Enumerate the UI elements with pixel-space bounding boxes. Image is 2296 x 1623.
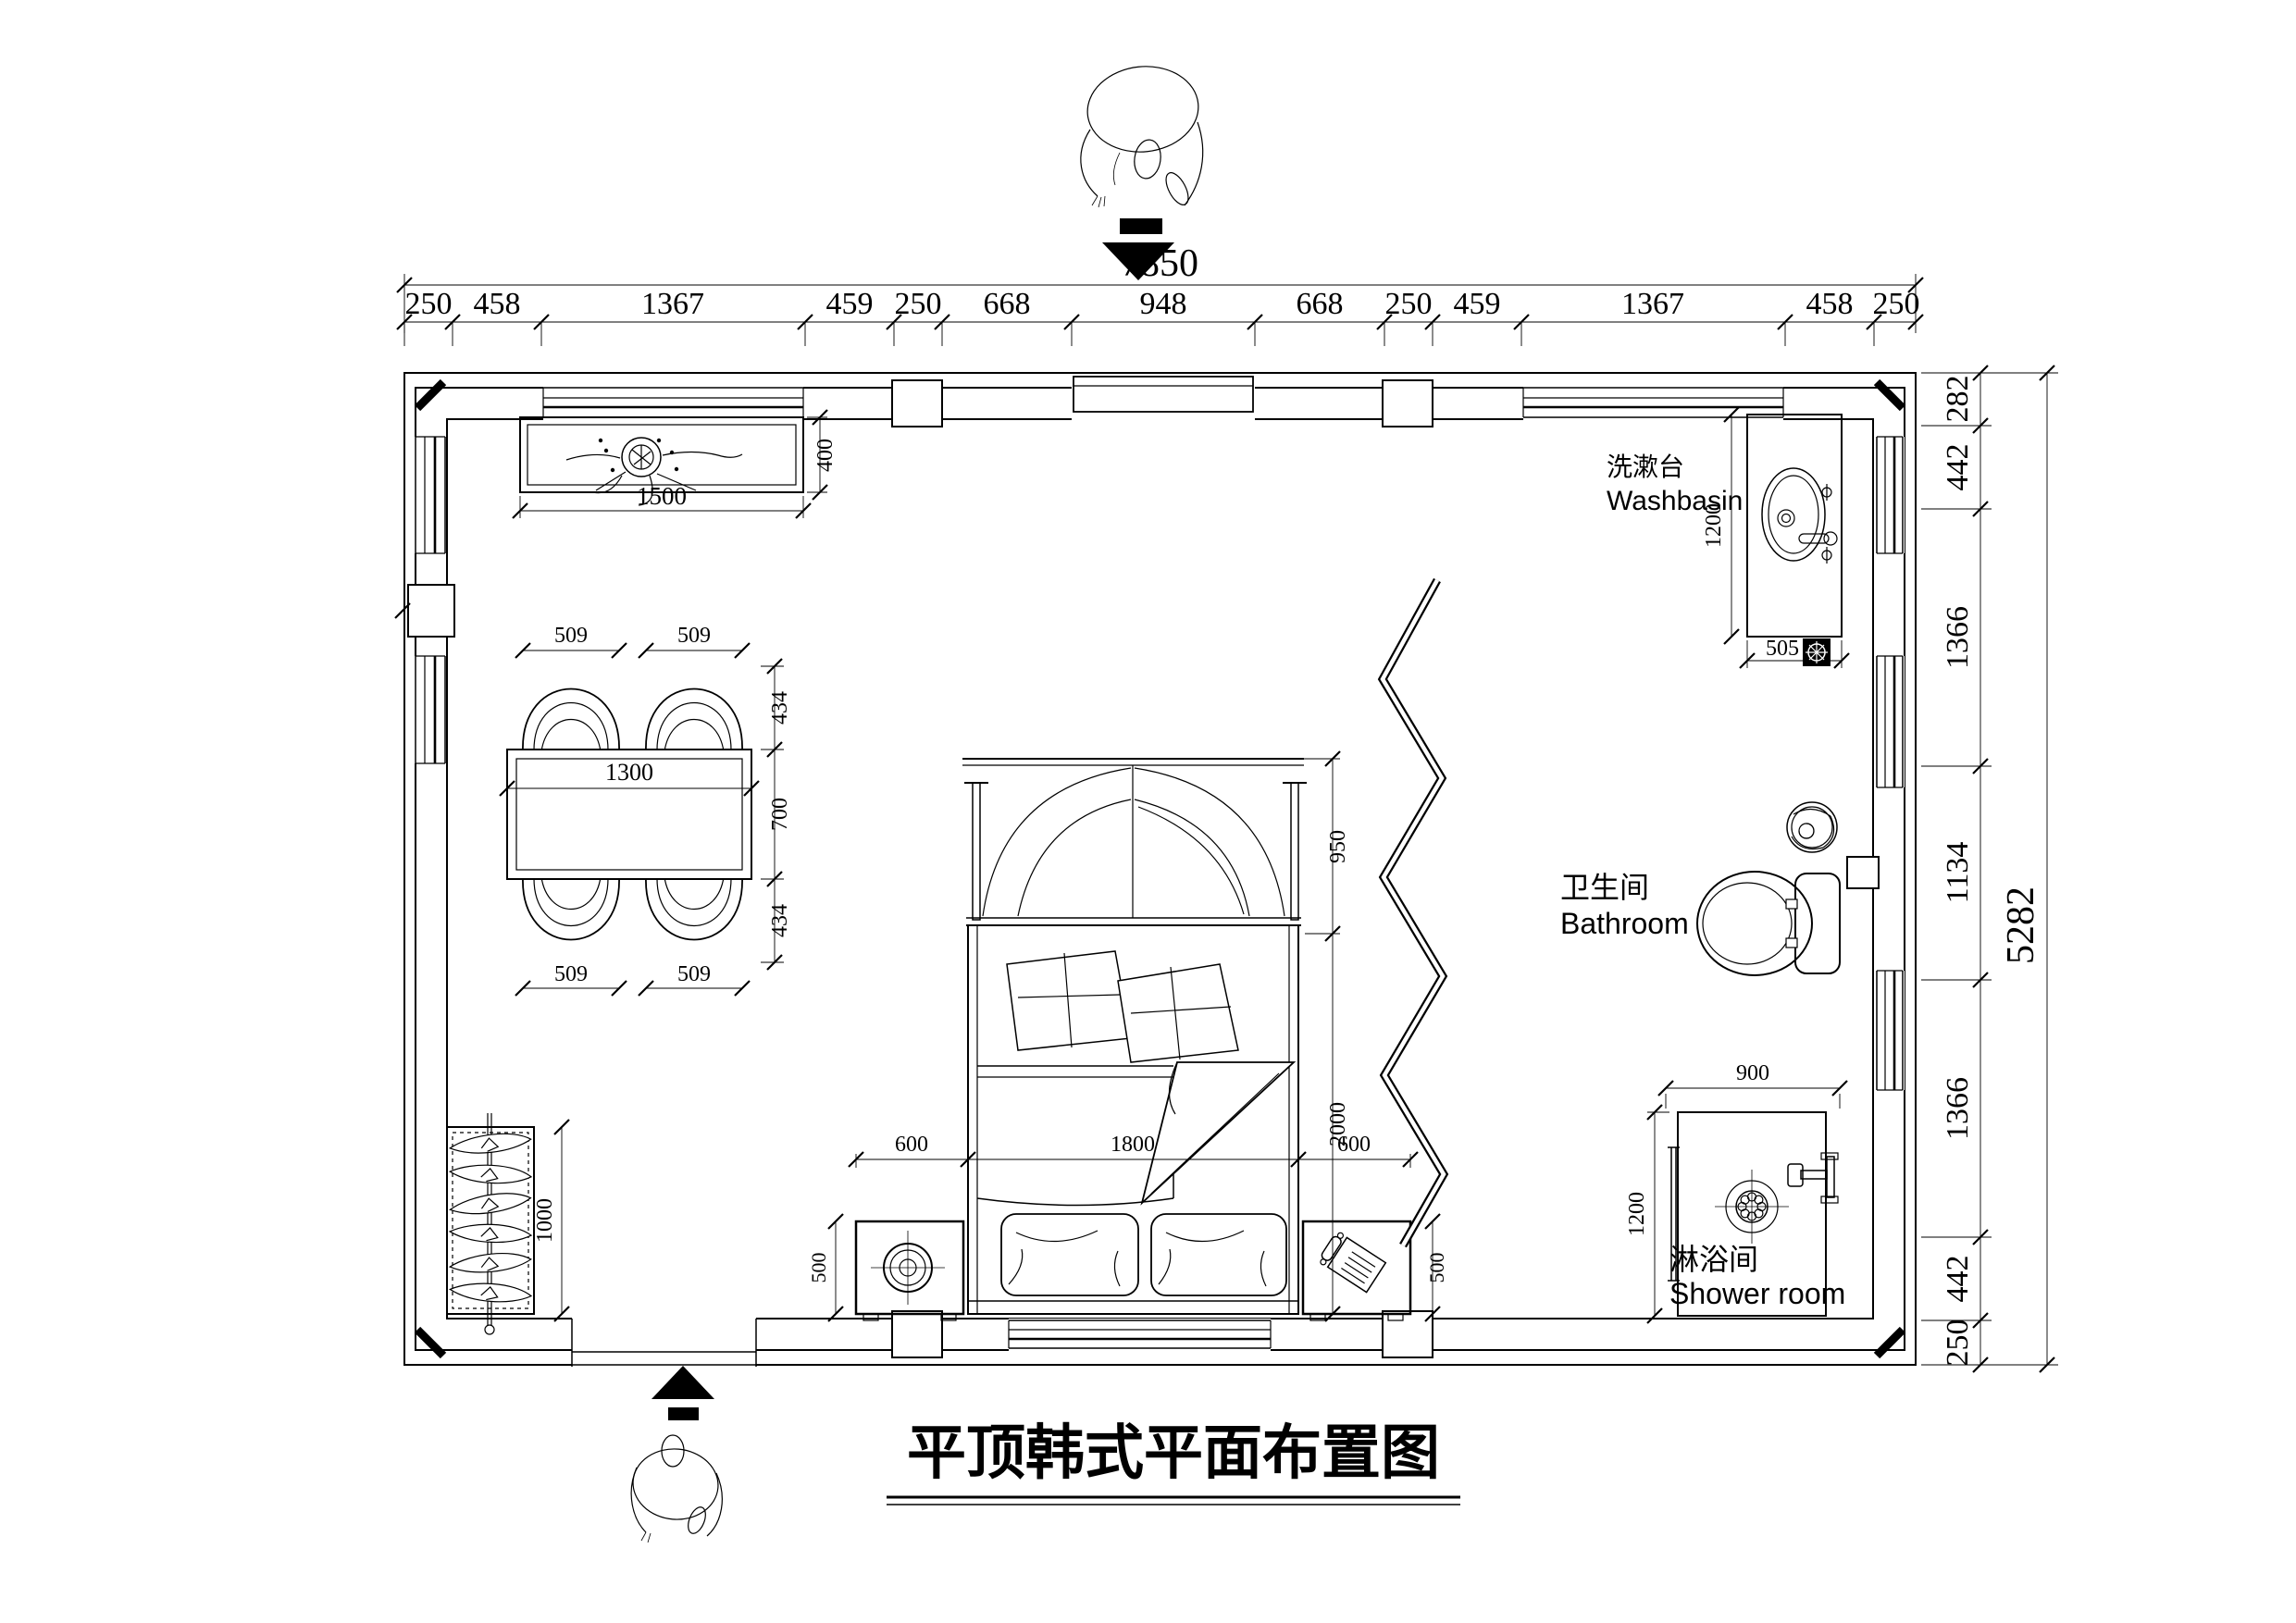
floor-plan-drawing: 7850 250 458 1367 459 250 668 948 668 25… bbox=[0, 0, 2296, 1623]
dim-chair-b0: 509 bbox=[554, 962, 588, 986]
dining-chair bbox=[646, 877, 742, 940]
dim-bed-left: 600 bbox=[895, 1133, 928, 1157]
dim-top-8: 250 bbox=[1385, 287, 1433, 321]
shower-drain bbox=[1715, 1170, 1789, 1244]
title-text: 平顶韩式平面布置图 bbox=[907, 1419, 1440, 1486]
dining-chair bbox=[523, 877, 619, 940]
telephone bbox=[1317, 1231, 1386, 1294]
dim-wardrobe: 1000 bbox=[533, 1198, 557, 1243]
nightstand-left: 500 bbox=[807, 1214, 963, 1321]
dim-chair-t0: 509 bbox=[554, 624, 588, 648]
window-right-lower bbox=[1875, 971, 1905, 1090]
dim-top-4: 250 bbox=[895, 287, 942, 321]
dim-counter-length: 1500 bbox=[637, 482, 687, 510]
door-top-entrance bbox=[1072, 377, 1255, 421]
dim-table-length: 1300 bbox=[605, 759, 653, 786]
table-lamp bbox=[871, 1231, 945, 1305]
bathroom-label: 卫生间 Bathroom bbox=[1560, 871, 1689, 940]
window-left-lower bbox=[412, 656, 445, 763]
bed-canopy bbox=[962, 759, 1307, 925]
nightstand-right: 500 bbox=[1303, 1214, 1448, 1321]
exhaust-fan-icon bbox=[1787, 802, 1837, 852]
shower-head bbox=[1788, 1153, 1838, 1203]
dim-nightstand-right: 500 bbox=[1425, 1253, 1448, 1283]
dim-top-0: 250 bbox=[405, 287, 453, 321]
shower-room: 900 1200 bbox=[1625, 1061, 1847, 1323]
dim-shower-depth: 1200 bbox=[1625, 1192, 1649, 1236]
window-right-middle bbox=[1875, 656, 1905, 787]
dim-right-0: 282 bbox=[1941, 376, 1975, 423]
dim-nightstand-left: 500 bbox=[807, 1253, 830, 1283]
dim-right-6: 250 bbox=[1941, 1319, 1975, 1367]
dim-right-2: 1366 bbox=[1941, 606, 1975, 669]
dim-right-total: 5282 bbox=[2000, 886, 2042, 964]
drawing-title: 平顶韩式平面布置图 bbox=[887, 1419, 1460, 1505]
dimension-top-chain: 250 458 1367 459 250 668 948 668 250 459… bbox=[397, 287, 1923, 346]
bed: 950 2000 600 1800 600 bbox=[849, 751, 1418, 1321]
dining-set: 1300 509 509 509 509 434 700 434 bbox=[500, 624, 792, 996]
dim-top-2: 1367 bbox=[641, 287, 704, 321]
label-bathroom-en: Bathroom bbox=[1560, 907, 1689, 940]
folding-screen bbox=[1383, 580, 1444, 1245]
dimension-right-total: 5282 bbox=[2000, 365, 2054, 1372]
dim-bed-width: 1800 bbox=[1111, 1133, 1155, 1157]
label-shower-zh: 淋浴间 bbox=[1669, 1243, 1758, 1276]
dim-counter-depth: 400 bbox=[813, 439, 838, 472]
kitchen-counter: 1500 400 bbox=[513, 410, 838, 518]
window-top-left bbox=[543, 384, 803, 421]
dim-washbasin-width: 505 bbox=[1766, 637, 1799, 661]
dim-right-5: 442 bbox=[1941, 1256, 1975, 1303]
label-washbasin-zh: 洗漱台 bbox=[1607, 452, 1684, 481]
clothes-rack: 1000 bbox=[447, 1113, 569, 1334]
dim-right-3: 1134 bbox=[1941, 842, 1975, 904]
door-bottom-entrance bbox=[572, 1317, 756, 1367]
window-left-upper bbox=[412, 437, 445, 553]
bed-pillow-right bbox=[1151, 1214, 1286, 1295]
label-washbasin-en: Washbasin bbox=[1607, 486, 1743, 516]
dim-top-9: 459 bbox=[1454, 287, 1501, 321]
bed-pillow-left bbox=[1001, 1214, 1138, 1295]
toilet bbox=[1697, 872, 1840, 975]
dim-dining-s1: 700 bbox=[768, 798, 792, 831]
person-bottom bbox=[630, 1435, 722, 1542]
dim-top-6: 948 bbox=[1140, 287, 1187, 321]
hanging-clothes bbox=[449, 1131, 532, 1306]
dim-top-5: 668 bbox=[984, 287, 1031, 321]
dim-top-7: 668 bbox=[1297, 287, 1344, 321]
entry-arrow-bottom bbox=[652, 1366, 714, 1420]
floor-plan-page: 7850 250 458 1367 459 250 668 948 668 25… bbox=[0, 0, 2296, 1623]
washbasin-counter: 1200 505 bbox=[1702, 407, 1849, 668]
dim-top-10: 1367 bbox=[1621, 287, 1684, 321]
bed-cushions bbox=[1007, 951, 1238, 1062]
dim-dining-s2: 434 bbox=[768, 904, 792, 937]
dim-chair-b1: 509 bbox=[677, 962, 711, 986]
dining-chair bbox=[523, 689, 619, 752]
dim-bed-canopy: 950 bbox=[1326, 830, 1350, 863]
dim-right-1: 442 bbox=[1941, 444, 1975, 491]
window-right-upper bbox=[1875, 437, 1905, 553]
dim-top-3: 459 bbox=[826, 287, 874, 321]
dim-dining-s0: 434 bbox=[768, 691, 792, 725]
label-shower-en: Shower room bbox=[1669, 1277, 1845, 1310]
window-top-right bbox=[1523, 384, 1783, 421]
dim-right-4: 1366 bbox=[1941, 1077, 1975, 1140]
dim-bed-right: 600 bbox=[1337, 1133, 1371, 1157]
dim-top-11: 458 bbox=[1806, 287, 1854, 321]
dim-top-1: 458 bbox=[474, 287, 521, 321]
label-bathroom-zh: 卫生间 bbox=[1560, 871, 1649, 904]
person-top bbox=[1081, 61, 1203, 208]
washbasin-label: 洗漱台 Washbasin bbox=[1607, 452, 1743, 516]
dim-top-12: 250 bbox=[1873, 287, 1920, 321]
dim-chair-t1: 509 bbox=[677, 624, 711, 648]
dim-shower-width: 900 bbox=[1736, 1061, 1769, 1085]
dining-chair bbox=[646, 689, 742, 752]
dimension-right-chain: 282 442 1366 1134 1366 442 250 bbox=[1921, 365, 2058, 1372]
floor-drain bbox=[1803, 638, 1831, 666]
window-bottom bbox=[1009, 1319, 1271, 1352]
